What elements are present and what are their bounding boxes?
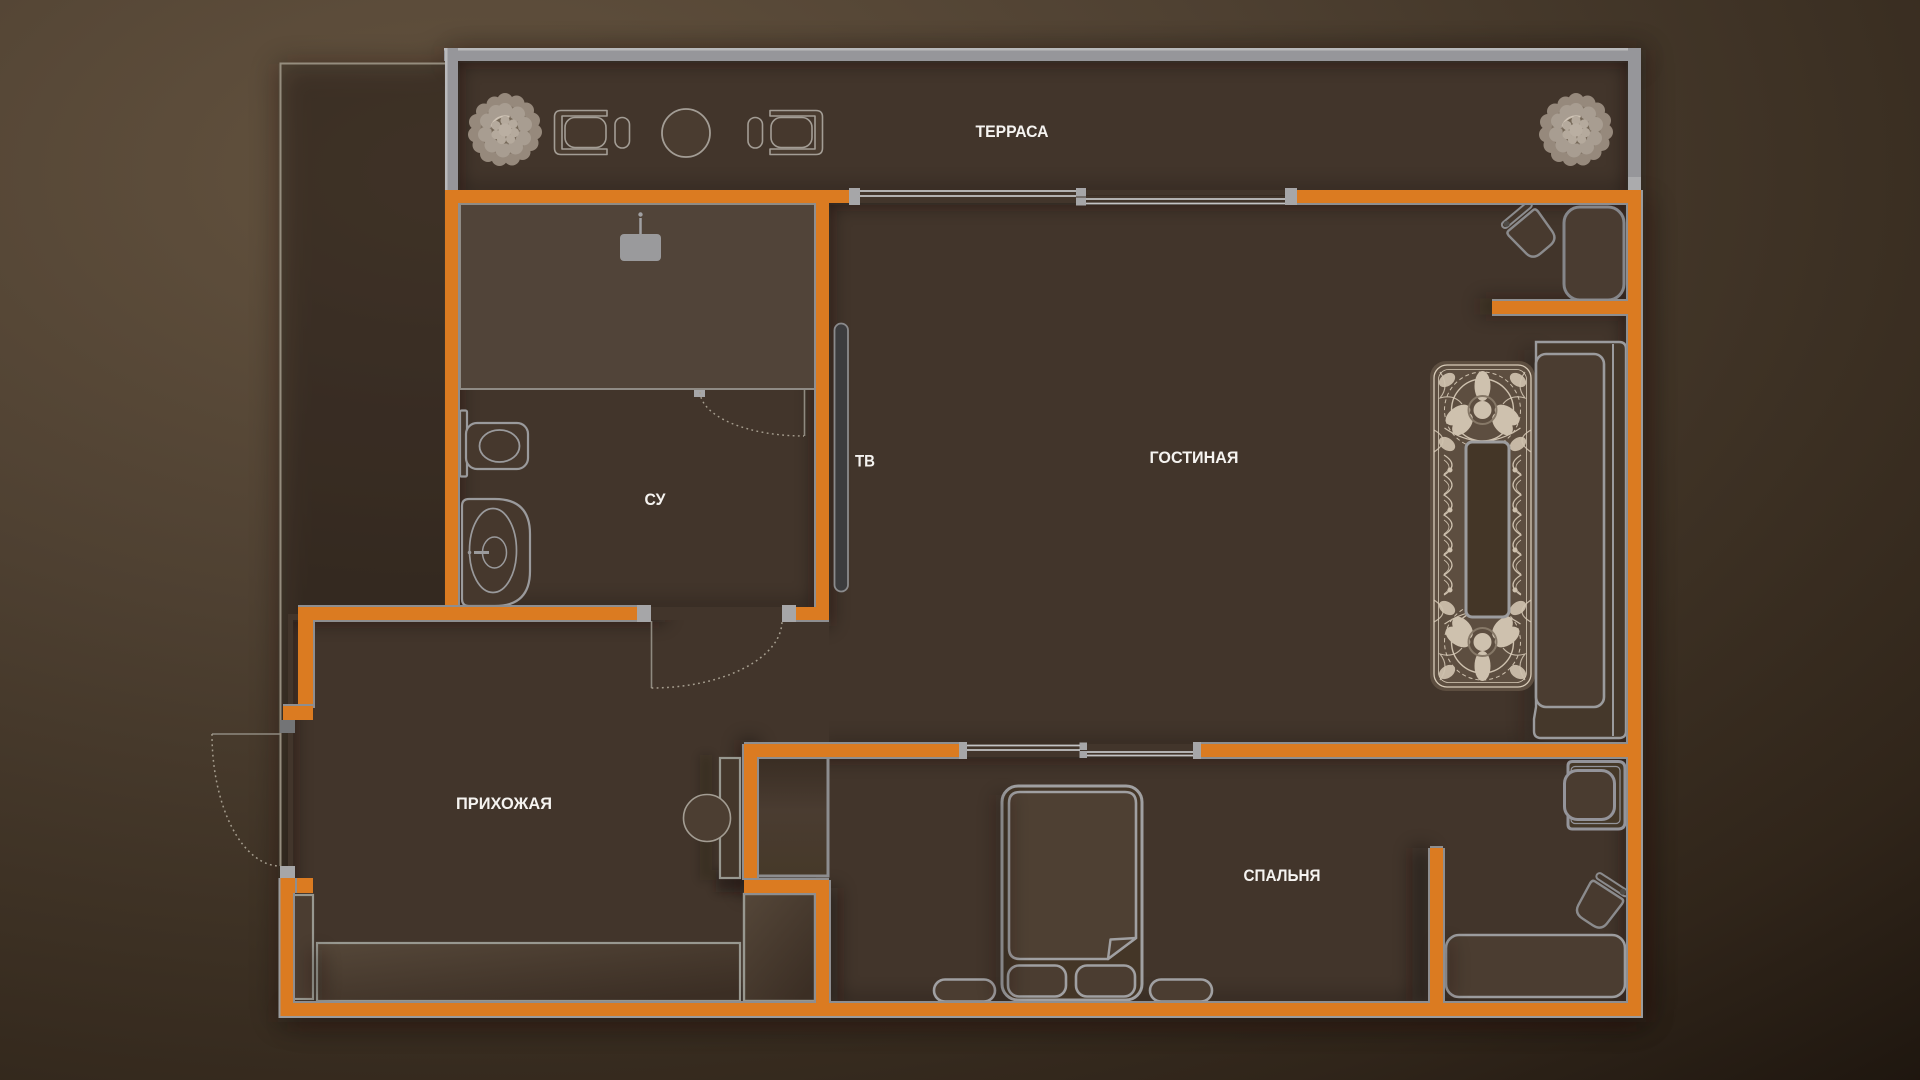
svg-text:СУ: СУ [645,490,666,509]
svg-text:СПАЛЬНЯ: СПАЛЬНЯ [1244,866,1321,885]
svg-text:ТЕРРАСА: ТЕРРАСА [976,122,1049,141]
svg-text:ТВ: ТВ [855,452,875,471]
svg-text:ГОСТИНАЯ: ГОСТИНАЯ [1150,448,1239,467]
svg-text:ПРИХОЖАЯ: ПРИХОЖАЯ [456,794,552,813]
